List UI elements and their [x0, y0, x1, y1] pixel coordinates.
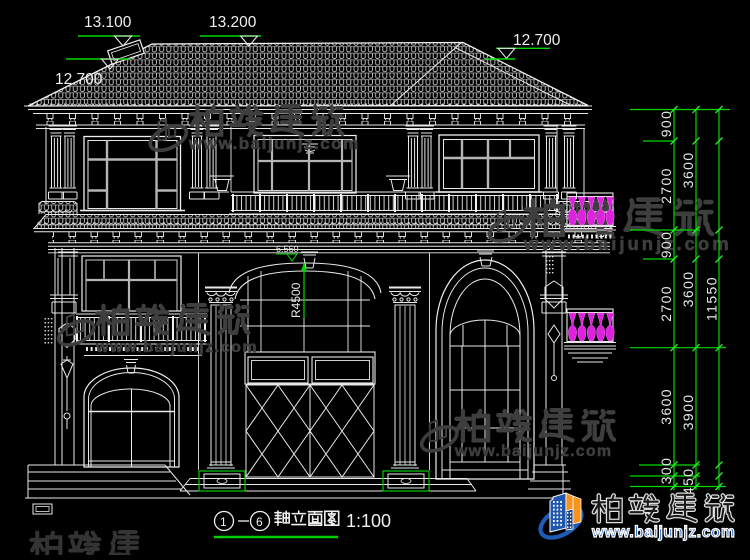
svg-text:900: 900 [658, 231, 674, 259]
svg-text:900: 900 [658, 110, 674, 138]
svg-text:11550: 11550 [704, 276, 720, 321]
svg-text:2700: 2700 [658, 285, 674, 322]
svg-text:450: 450 [680, 468, 696, 496]
svg-text:2700: 2700 [658, 167, 674, 204]
svg-text:6: 6 [256, 515, 263, 529]
svg-text:1: 1 [220, 515, 227, 529]
svg-text:R4500: R4500 [289, 282, 303, 318]
svg-text:1:100: 1:100 [346, 511, 391, 531]
svg-text:12.700: 12.700 [513, 32, 561, 49]
svg-text:www.baijunjz.com: www.baijunjz.com [591, 524, 735, 541]
svg-text:6.560: 6.560 [276, 244, 299, 254]
svg-text:13.200: 13.200 [209, 14, 257, 31]
svg-text:www.baijunjz.com: www.baijunjz.com [188, 134, 360, 153]
svg-text:3600: 3600 [658, 388, 674, 425]
svg-text:3600: 3600 [680, 271, 696, 308]
svg-text:13.100: 13.100 [84, 14, 132, 31]
svg-text:3600: 3600 [680, 151, 696, 188]
svg-text:www.baijunjz.com: www.baijunjz.com [454, 443, 612, 460]
svg-text:www.baijunjz.com: www.baijunjz.com [523, 233, 732, 254]
svg-text:www.baijunjz.com: www.baijunjz.com [95, 339, 258, 356]
svg-text:3900: 3900 [680, 394, 696, 431]
svg-text:12.700: 12.700 [55, 71, 103, 88]
svg-text:300: 300 [658, 457, 674, 485]
